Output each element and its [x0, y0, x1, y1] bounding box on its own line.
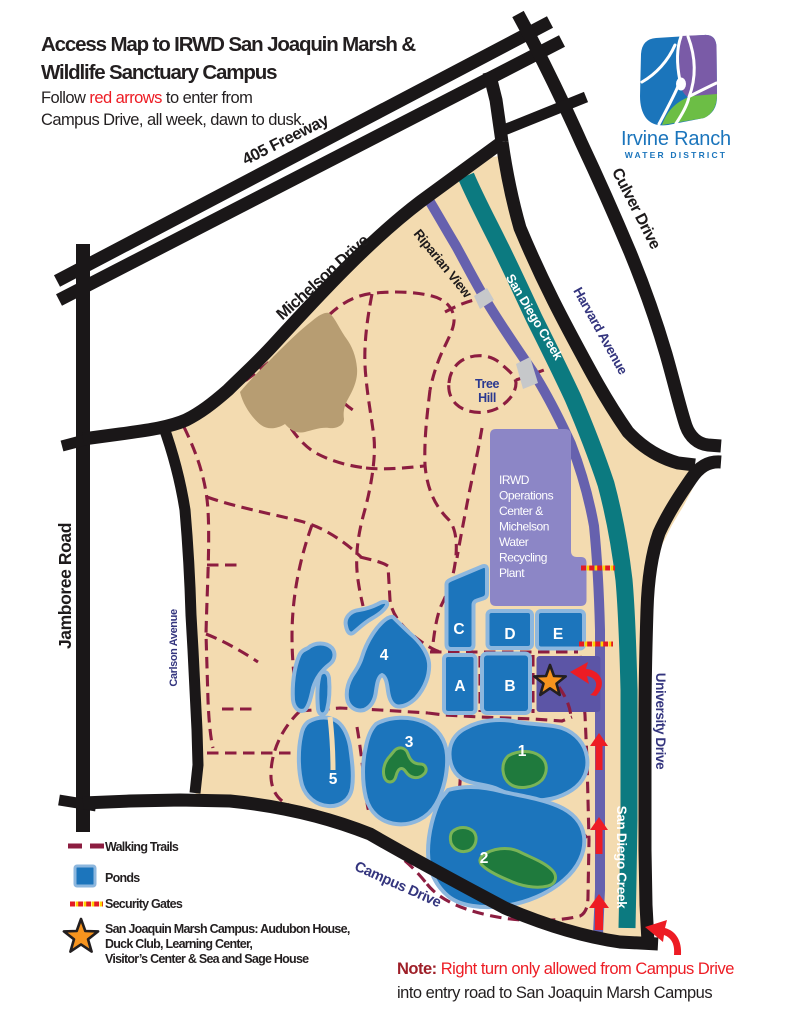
svg-text:University Drive: University Drive: [653, 673, 668, 770]
svg-text:Water: Water: [499, 535, 529, 549]
svg-text:San Diego Creek: San Diego Creek: [614, 806, 629, 910]
svg-text:Access Map to IRWD San Joaquin: Access Map to IRWD San Joaquin Marsh &: [41, 33, 416, 56]
svg-text:1: 1: [518, 743, 527, 760]
svg-text:San Joaquin Marsh Campus: Audu: San Joaquin Marsh Campus: Audubon House,: [105, 922, 350, 936]
svg-text:A: A: [454, 678, 465, 695]
svg-text:B: B: [504, 678, 515, 695]
svg-text:Note: Right turn only allowed: Note: Right turn only allowed from Campu…: [397, 960, 734, 978]
svg-text:Carlson Avenue: Carlson Avenue: [168, 609, 180, 687]
svg-text:WATER DISTRICT: WATER DISTRICT: [625, 150, 727, 160]
svg-text:Recycling: Recycling: [499, 551, 547, 565]
svg-text:D: D: [504, 626, 515, 643]
svg-text:E: E: [553, 626, 563, 643]
svg-text:Wildlife Sanctuary Campus: Wildlife Sanctuary Campus: [41, 61, 277, 84]
svg-text:Tree: Tree: [475, 377, 500, 391]
svg-text:Walking Trails: Walking Trails: [105, 840, 179, 854]
svg-text:Campus Drive, all week, dawn t: Campus Drive, all week, dawn to dusk.: [41, 111, 305, 129]
svg-text:3: 3: [405, 734, 414, 751]
svg-text:Plant: Plant: [499, 566, 525, 580]
svg-text:Ponds: Ponds: [105, 871, 140, 885]
svg-text:Michelson: Michelson: [499, 520, 549, 534]
svg-text:Follow red arrows to enter fro: Follow red arrows to enter from: [41, 89, 252, 107]
svg-text:Security Gates: Security Gates: [105, 897, 183, 911]
svg-text:Operations: Operations: [499, 489, 554, 503]
svg-text:Jamboree Road: Jamboree Road: [55, 523, 75, 649]
svg-text:into entry road to San Joaquin: into entry road to San Joaquin Marsh Cam…: [397, 984, 712, 1002]
svg-text:Irvine Ranch: Irvine Ranch: [621, 128, 731, 150]
svg-text:4: 4: [380, 647, 389, 664]
svg-text:IRWD: IRWD: [499, 473, 530, 487]
svg-text:Center &: Center &: [499, 504, 543, 518]
svg-text:Hill: Hill: [478, 391, 496, 405]
svg-text:2: 2: [480, 850, 489, 867]
svg-text:5: 5: [329, 771, 338, 788]
svg-text:Duck Club, Learning Center,: Duck Club, Learning Center,: [105, 937, 252, 951]
svg-text:C: C: [453, 621, 464, 638]
svg-text:Visitor’s Center & Sea and Sag: Visitor’s Center & Sea and Sage House: [105, 952, 309, 966]
